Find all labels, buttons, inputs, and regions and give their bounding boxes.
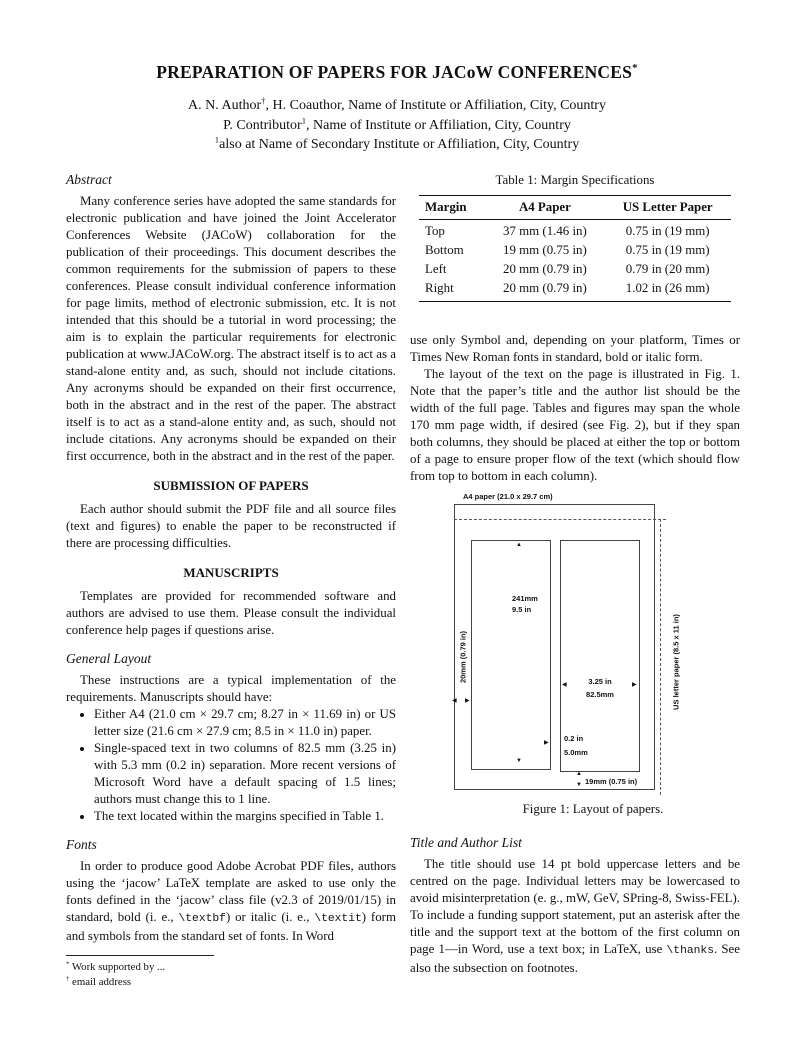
footnote-funding: * Work supported by ... — [66, 960, 396, 975]
author-line: 1also at Name of Secondary Institute or … — [0, 135, 794, 155]
us-letter-right-edge — [660, 519, 661, 795]
us-letter-paper-label: US letter paper (8.5 x 11 in) — [672, 614, 681, 710]
table-cell: 20 mm (0.79 in) — [485, 260, 604, 279]
left-margin-label: 20mm (0.79 in) — [459, 631, 468, 683]
layout-diagram: A4 paper (21.0 x 29.7 cm) ▲ ▼ 241mm 9.5 … — [454, 492, 699, 794]
column-height-in-label: 9.5 in — [512, 605, 531, 614]
footnote-email: † email address — [66, 975, 396, 990]
arrow-up-icon: ▲ — [576, 771, 582, 777]
column-height-mm-label: 241mm — [512, 594, 538, 603]
table-cell: Bottom — [419, 241, 485, 260]
arrow-right-icon: ▶ — [544, 740, 549, 746]
column-header: Margin — [419, 196, 485, 220]
abstract-heading: Abstract — [66, 172, 396, 188]
table-cell: 0.75 in (19 mm) — [604, 220, 731, 242]
left-column: Abstract Many conference series have ado… — [66, 172, 396, 990]
left-text-column-box — [471, 540, 551, 770]
table-cell: 1.02 in (26 mm) — [604, 279, 731, 302]
manuscripts-paragraph: Templates are provided for recommended s… — [66, 588, 396, 639]
footnote-divider — [66, 955, 214, 956]
figure-caption: Figure 1: Layout of papers. — [410, 802, 740, 817]
requirements-list: Either A4 (21.0 cm × 29.7 cm; 8.27 in × … — [94, 706, 396, 825]
table-caption: Table 1: Margin Specifications — [410, 173, 740, 188]
table-header-row: Margin A4 Paper US Letter Paper — [419, 196, 731, 220]
column-header: A4 Paper — [485, 196, 604, 220]
table-cell: 20 mm (0.79 in) — [485, 279, 604, 302]
fonts-heading: Fonts — [66, 837, 396, 853]
list-item: Single-spaced text in two columns of 82.… — [94, 740, 396, 808]
table-cell: Left — [419, 260, 485, 279]
manuscripts-heading: MANUSCRIPTS — [66, 565, 396, 581]
table-cell: Top — [419, 220, 485, 242]
fonts-continuation-paragraph: use only Symbol and, depending on your p… — [410, 332, 740, 366]
abstract-paragraph: Many conference series have adopted the … — [66, 193, 396, 465]
column-width-in-label: 3.25 in — [560, 677, 640, 686]
column-width-mm-label: 82.5mm — [560, 690, 640, 699]
general-layout-intro: These instructions are a typical impleme… — [66, 672, 396, 706]
column-gap-mm-label: 5.0mm — [564, 748, 588, 757]
figure-1: A4 paper (21.0 x 29.7 cm) ▲ ▼ 241mm 9.5 … — [410, 492, 740, 817]
table-cell: 19 mm (0.75 in) — [485, 241, 604, 260]
title-author-list-heading: Title and Author List — [410, 835, 740, 851]
general-layout-heading: General Layout — [66, 651, 396, 667]
submission-paragraph: Each author should submit the PDF file a… — [66, 501, 396, 552]
table-cell: 0.75 in (19 mm) — [604, 241, 731, 260]
column-gap-in-label: 0.2 in — [564, 734, 583, 743]
list-item: Either A4 (21.0 cm × 29.7 cm; 8.27 in × … — [94, 706, 396, 740]
list-item: The text located within the margins spec… — [94, 808, 396, 825]
table-row: Top 37 mm (1.46 in) 0.75 in (19 mm) — [419, 220, 731, 242]
bottom-margin-label: 19mm (0.75 in) — [585, 777, 637, 786]
arrow-left-icon: ◀ — [562, 682, 567, 688]
table-cell: Right — [419, 279, 485, 302]
paper-page: PREPARATION OF PAPERS FOR JACoW CONFEREN… — [0, 0, 794, 1057]
table-row: Right 20 mm (0.79 in) 1.02 in (26 mm) — [419, 279, 731, 302]
arrow-down-icon: ▼ — [576, 782, 582, 788]
fonts-paragraph: In order to produce good Adobe Acrobat P… — [66, 858, 396, 945]
paper-title: PREPARATION OF PAPERS FOR JACoW CONFEREN… — [0, 62, 794, 83]
arrow-right-icon: ▶ — [465, 698, 470, 704]
arrow-left-icon: ◀ — [452, 698, 457, 704]
title-author-list-paragraph: The title should use 14 pt bold uppercas… — [410, 856, 740, 977]
author-line: A. N. Author†, H. Coauthor, Name of Inst… — [0, 96, 794, 116]
column-header: US Letter Paper — [604, 196, 731, 220]
table-row: Bottom 19 mm (0.75 in) 0.75 in (19 mm) — [419, 241, 731, 260]
author-block: A. N. Author†, H. Coauthor, Name of Inst… — [0, 96, 794, 155]
us-letter-top-edge — [454, 519, 666, 520]
arrow-right-icon: ▶ — [632, 682, 637, 688]
submission-heading: SUBMISSION OF PAPERS — [66, 478, 396, 494]
layout-paragraph: The layout of the text on the page is il… — [410, 366, 740, 485]
arrow-down-icon: ▼ — [516, 758, 522, 764]
table-cell: 0.79 in (20 mm) — [604, 260, 731, 279]
table-cell: 37 mm (1.46 in) — [485, 220, 604, 242]
arrow-up-icon: ▲ — [516, 542, 522, 548]
right-column: Table 1: Margin Specifications Margin A4… — [410, 172, 740, 977]
margin-specifications-table: Margin A4 Paper US Letter Paper Top 37 m… — [419, 195, 731, 302]
table-row: Left 20 mm (0.79 in) 0.79 in (20 mm) — [419, 260, 731, 279]
author-line: P. Contributor1, Name of Institute or Af… — [0, 116, 794, 136]
a4-paper-label: A4 paper (21.0 x 29.7 cm) — [463, 492, 553, 501]
